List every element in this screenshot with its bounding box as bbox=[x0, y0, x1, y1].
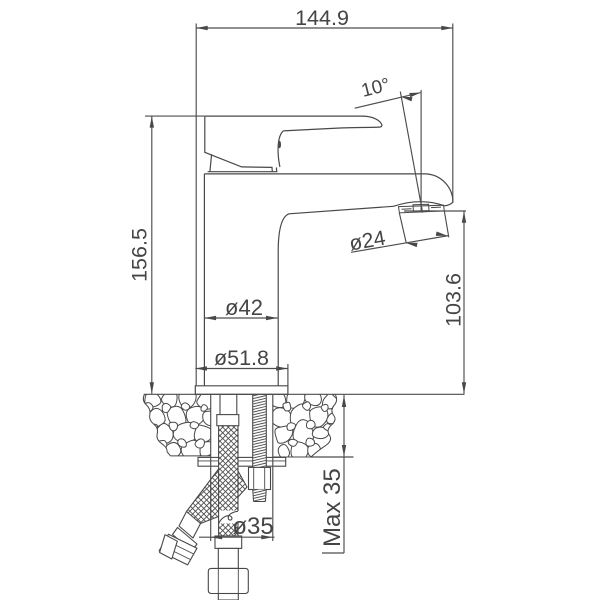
svg-text:144.9: 144.9 bbox=[295, 6, 349, 30]
svg-text:156.5: 156.5 bbox=[128, 228, 152, 282]
svg-text:Max 35: Max 35 bbox=[319, 468, 346, 547]
svg-text:ø51.8: ø51.8 bbox=[214, 346, 269, 370]
svg-text:ø35: ø35 bbox=[232, 513, 273, 540]
svg-text:ø42: ø42 bbox=[225, 295, 263, 320]
svg-text:103.6: 103.6 bbox=[442, 273, 466, 327]
